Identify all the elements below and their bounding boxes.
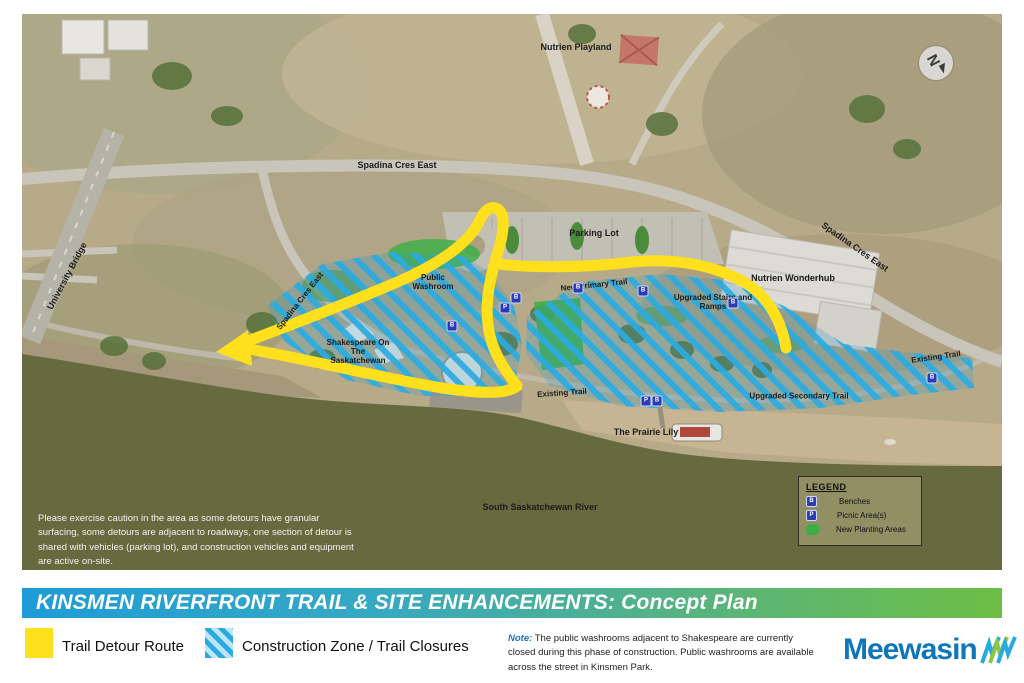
legend-item-planting: New Planting Areas — [806, 524, 914, 535]
label-public-washroom: Public Washroom — [404, 273, 462, 291]
bench-marker: B — [447, 321, 458, 332]
note-label: Note: — [508, 633, 532, 644]
label-upgraded-stairs-ramps: Upgraded Stairs and Ramps — [672, 293, 754, 311]
caution-text: Please exercise caution in the area as s… — [38, 512, 360, 569]
legend-item-label: Benches — [839, 497, 870, 506]
footer-note: Note: The public washrooms adjacent to S… — [508, 632, 814, 675]
bench-marker: B — [728, 298, 739, 309]
label-nutrien-playland: Nutrien Playland — [540, 42, 611, 52]
bench-marker: B — [638, 286, 649, 297]
map-legend-box: LEGEND B Benches P Picnic Area(s) New Pl… — [798, 476, 922, 546]
picnic-marker: P — [641, 396, 652, 407]
label-nutrien-wonderhub: Nutrien Wonderhub — [751, 273, 835, 283]
bench-marker-icon: B — [806, 496, 817, 507]
label-prairie-lily: The Prairie Lily — [614, 427, 679, 437]
legend-item-benches: B Benches — [806, 496, 914, 507]
label-parking-lot: Parking Lot — [569, 228, 619, 238]
bench-marker: B — [573, 283, 584, 294]
bench-marker: B — [927, 373, 938, 384]
north-arrow-icon: N — [919, 46, 953, 80]
planting-area-icon — [805, 523, 820, 536]
picnic-marker-icon: P — [806, 510, 817, 521]
meewasin-logo: Meewasin — [843, 633, 1018, 667]
note-text: The public washrooms adjacent to Shakesp… — [508, 633, 814, 673]
label-upgraded-secondary-trail: Upgraded Secondary Trail — [749, 391, 848, 400]
legend-item-label: Picnic Area(s) — [837, 511, 886, 520]
bench-marker: B — [511, 293, 522, 304]
picnic-marker: P — [500, 303, 511, 314]
label-shakespeare: Shakespeare On The Saskatchewan — [325, 338, 391, 366]
construction-zone-swatch — [205, 628, 233, 658]
label-spadina-cres-east-top: Spadina Cres East — [357, 160, 436, 170]
legend-title: LEGEND — [806, 482, 914, 492]
meewasin-zigzag-icon — [980, 635, 1018, 665]
page-title: KINSMEN RIVERFRONT TRAIL & SITE ENHANCEM… — [22, 588, 1002, 618]
aerial-map: Nutrien Playland Spadina Cres East Spadi… — [22, 14, 1002, 570]
construction-zone-label: Construction Zone / Trail Closures — [242, 638, 469, 655]
trail-detour-swatch — [25, 628, 53, 658]
label-south-saskatchewan-river: South Saskatchewan River — [482, 502, 597, 512]
meewasin-wordmark: Meewasin — [843, 633, 977, 667]
concept-plan-page: Nutrien Playland Spadina Cres East Spadi… — [0, 0, 1024, 683]
legend-item-label: New Planting Areas — [836, 525, 906, 534]
legend-item-picnic: P Picnic Area(s) — [806, 510, 914, 521]
bench-marker: B — [652, 396, 663, 407]
title-bar: KINSMEN RIVERFRONT TRAIL & SITE ENHANCEM… — [22, 588, 1002, 618]
trail-detour-label: Trail Detour Route — [62, 638, 184, 655]
